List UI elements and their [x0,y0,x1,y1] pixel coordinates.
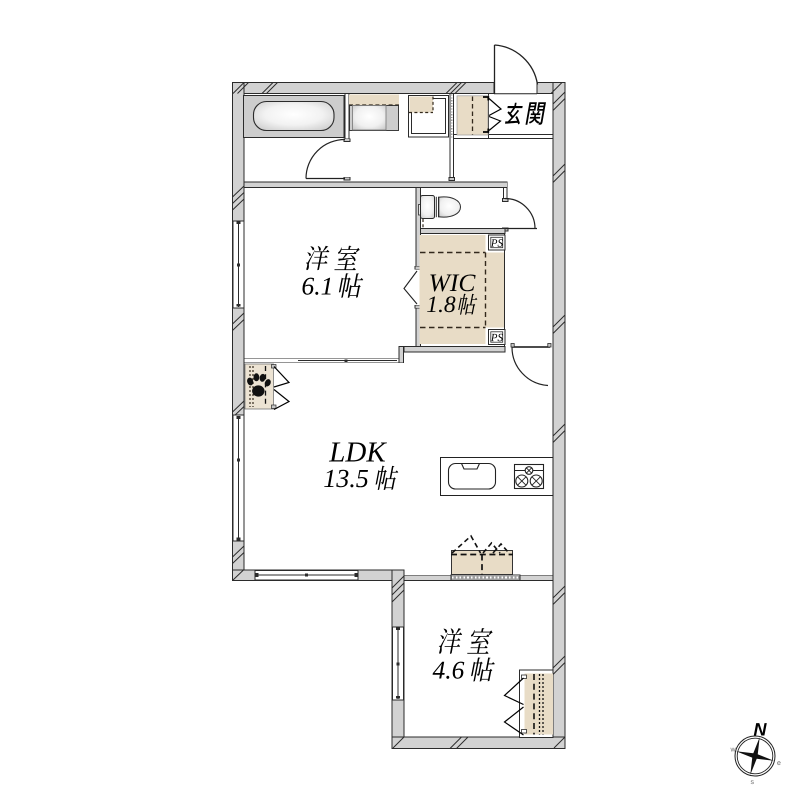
svg-text:LDK: LDK [328,437,387,469]
svg-text:WIC: WIC [429,268,477,297]
